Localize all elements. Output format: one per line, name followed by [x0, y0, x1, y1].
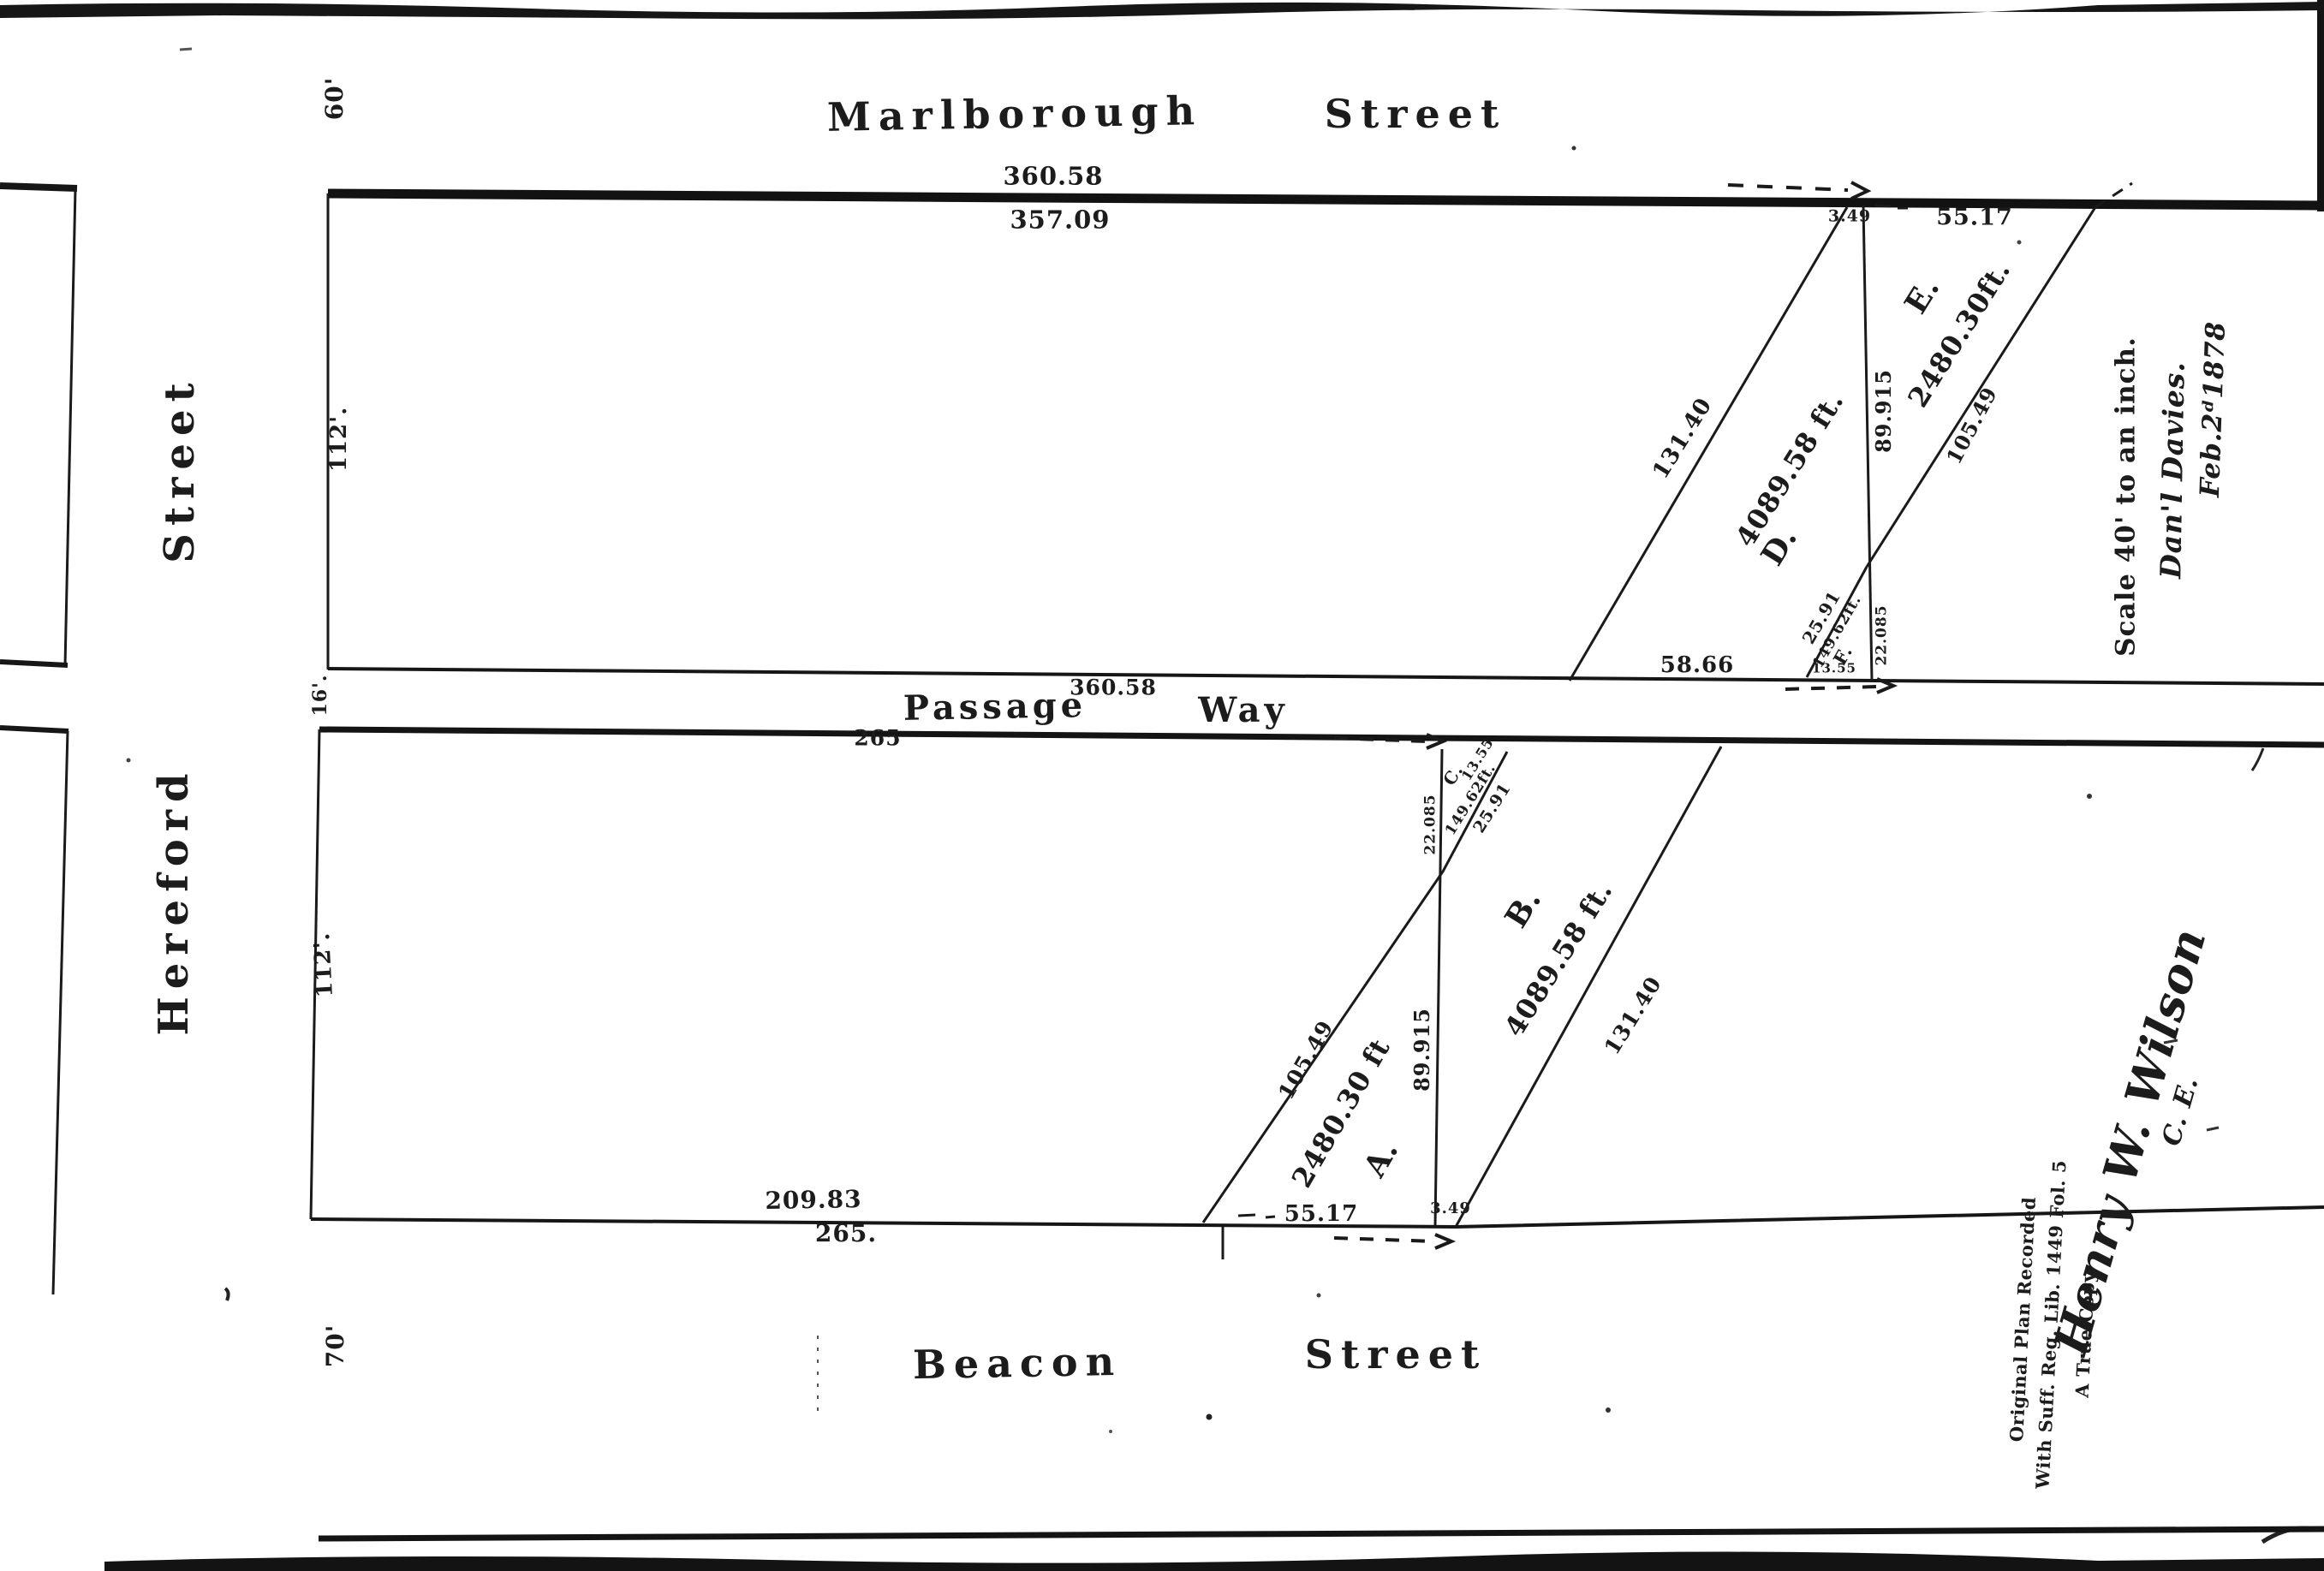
parcel-c-side-dim: 22.085	[1424, 794, 1439, 854]
parcel-d-gap-dim: 3.49	[1828, 209, 1871, 225]
passage-way-word: Way	[1198, 693, 1289, 728]
left-lower-block-right	[53, 731, 68, 1294]
speck-1	[1572, 146, 1576, 151]
left-upper-block-bottom	[0, 662, 68, 665]
hereford-street-word: Street	[159, 375, 200, 562]
beacon-south-line	[319, 1529, 2324, 1538]
speck-dash-3	[180, 49, 192, 50]
speck-8	[1317, 1294, 1321, 1298]
speck-dash-2	[2207, 1128, 2219, 1130]
beacon-dim-frontage: 209.83	[765, 1187, 862, 1213]
marlborough-dim-north: 360.58	[1004, 164, 1104, 189]
parcel-f-base-dim: 13.55	[1812, 663, 1856, 675]
survey-plan-sheet: Marlborough Street Hereford Street Passa…	[0, 0, 2324, 1571]
dash-e-corner-1	[1875, 205, 1891, 206]
beacon-street-word: Street	[1305, 1335, 1487, 1374]
marlborough-dim-dashes	[1728, 185, 1848, 190]
parcel-a-base-dim: 55.17	[1284, 1203, 1358, 1225]
surveyor-name: Dan'l Davies.	[2156, 361, 2188, 579]
parcel-b-gap-dim: 3.49	[1430, 1201, 1471, 1217]
marlborough-dim-south: 357.09	[1010, 208, 1111, 233]
dash-a-corner-1	[1238, 1215, 1255, 1216]
passage-right-tick	[2252, 748, 2263, 771]
beacon-name: Beacon	[913, 1342, 1123, 1384]
speck-4	[1207, 1414, 1213, 1420]
left-lower-block-top	[0, 728, 69, 731]
beacon-dim-arrowhead	[1435, 1235, 1451, 1248]
parcel-d-south-dim: 58.66	[1660, 654, 1734, 676]
hereford-name: Hereford	[153, 765, 194, 1035]
scale-note: Scale 40' to an inch.	[2113, 336, 2140, 657]
parcel-e-side-dim: 89.915	[1874, 369, 1894, 453]
scan-right-edge	[2317, 0, 2324, 211]
speck-3	[2087, 794, 2092, 799]
upper-block-depth-label: 112'.	[328, 407, 350, 472]
passage-dim-north: 360.58	[1070, 677, 1157, 699]
torn-bottom-edge	[104, 1552, 2324, 1571]
passage-width-label: 16'.	[311, 674, 330, 716]
marlborough-name: Marlborough	[827, 91, 1203, 137]
left-upper-block-right	[65, 188, 75, 666]
marlborough-street-word: Street	[1325, 94, 1506, 134]
beacon-width-label: 70'	[324, 1324, 348, 1368]
beacon-dim-total: 265.	[815, 1222, 877, 1246]
parcel-e-base-dim: 55.17	[1936, 206, 2013, 229]
marlborough-dim-arrowhead	[1851, 182, 1868, 199]
marlborough-width-label: 60'	[323, 77, 347, 121]
beacon-dim-dashes	[1334, 1238, 1435, 1241]
torn-top-edge	[0, 2, 2324, 19]
speck-6	[1109, 1430, 1112, 1433]
passage-dim-south: 265	[854, 728, 901, 749]
left-upper-block-top	[0, 186, 77, 188]
passage-north-dim-dashes	[1785, 687, 1877, 689]
parcel-f-side-dim: 22.085	[1875, 604, 1890, 665]
speck-comma	[225, 1288, 229, 1300]
passage-north-line	[328, 669, 2324, 684]
speck-7	[127, 759, 131, 763]
speck-2	[2017, 241, 2022, 245]
survey-date: Feb.2ᵈ1878	[2197, 321, 2230, 498]
lower-block-depth-label: 112'.	[311, 931, 337, 998]
parcel-a-side-dim: 89.915	[1412, 1008, 1433, 1092]
passage-name: Passage	[903, 688, 1088, 726]
dash-a-corner-2	[1266, 1217, 1275, 1217]
speck-5	[1606, 1407, 1611, 1413]
passage-south-line	[319, 729, 2324, 745]
marlborough-street-line	[328, 193, 2324, 205]
